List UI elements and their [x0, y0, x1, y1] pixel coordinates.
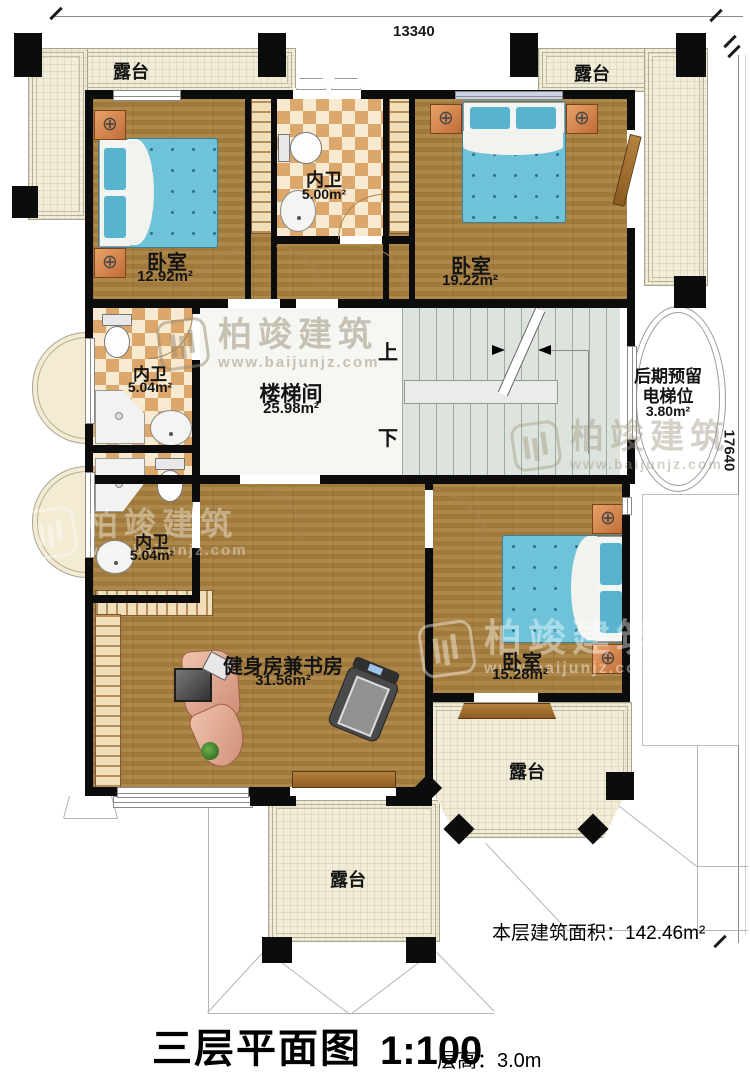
sink [150, 410, 192, 446]
column [676, 33, 706, 77]
terrace-top-right-wing [644, 48, 708, 286]
floor-area-label: 本层建筑面积： [492, 923, 625, 944]
wardrobe [389, 98, 411, 234]
wall-stub [250, 796, 296, 806]
nightstand: ⊕ [592, 644, 624, 674]
column [12, 186, 38, 218]
wall [85, 90, 93, 795]
column [510, 33, 538, 77]
wall [245, 90, 251, 308]
roof-line [63, 796, 70, 818]
room-area-elevator: 3.80m² [646, 403, 690, 419]
roof-line [611, 800, 697, 867]
floor-plan: 13340 17640 上 下 [0, 0, 750, 1079]
wall [85, 595, 197, 603]
dimension-tick [713, 935, 726, 948]
wardrobe [251, 98, 273, 234]
top-dimension-value: 13340 [393, 23, 435, 40]
door-frame [331, 78, 361, 90]
dimension-tick [723, 35, 736, 48]
boundary-line [745, 55, 746, 935]
roof-line [64, 818, 118, 819]
bed [502, 535, 628, 643]
terrace-door-opening [290, 787, 396, 796]
roof-line [436, 952, 494, 1011]
plant [201, 742, 219, 760]
terrace-label: 露台 [509, 758, 545, 784]
door-opening [425, 490, 433, 548]
room-area-bedroom-bottom: 15.28m² [492, 666, 548, 683]
roof-line [697, 866, 748, 867]
wall [85, 475, 635, 484]
door-opening [228, 299, 280, 308]
room-area-bedroom-top-left: 12.92m² [137, 268, 193, 285]
door-leaf [292, 771, 396, 788]
room-area-bedroom-top-right: 19.22m² [442, 272, 498, 289]
wall [622, 483, 630, 702]
right-dimension-value: 17640 [720, 430, 737, 472]
stair-down-label: 下 [378, 422, 398, 451]
bay-window [32, 332, 91, 444]
stair-guide-line [588, 350, 589, 454]
column [14, 33, 42, 77]
bed-sheet [463, 131, 563, 155]
pillow [599, 590, 623, 634]
column [406, 937, 436, 963]
room-area-gym-study: 31.56m² [255, 672, 311, 689]
bed [462, 101, 566, 223]
terrace-label: 露台 [574, 60, 610, 86]
door-opening [240, 475, 320, 484]
nightstand: ⊕ [592, 504, 624, 534]
floor-area-value: 142.46m² [625, 923, 705, 944]
floor-height-value: 3.0m [497, 1050, 541, 1072]
stair-guide-line [551, 350, 589, 351]
future-elevator-opening [627, 346, 637, 440]
roof-line [208, 806, 209, 1014]
room-area-bath-top: 5.00m² [302, 186, 346, 202]
floor-height-label: 层高： [437, 1050, 497, 1072]
column [258, 33, 286, 77]
nightstand: ⊕ [430, 104, 462, 134]
window [622, 497, 632, 515]
stair-landing [404, 380, 558, 404]
pillow [103, 195, 127, 239]
stair-up-label: 上 [378, 336, 398, 365]
drawing-title: 三层平面图 [152, 1016, 362, 1074]
toilet [104, 326, 130, 358]
toilet [278, 134, 290, 162]
door-leaf [458, 703, 556, 719]
column [606, 772, 634, 800]
wardrobe [95, 614, 121, 788]
bay-window-opening [85, 472, 95, 558]
nightstand: ⊕ [94, 248, 126, 278]
roof-line [697, 745, 698, 931]
nightstand: ⊕ [94, 110, 126, 140]
terrace-label: 露台 [330, 866, 366, 892]
bed-sheet [128, 139, 154, 245]
floor-height-note: 层高：3.0m [437, 1044, 541, 1073]
bed [98, 138, 218, 248]
roof-line [207, 951, 264, 1013]
door-opening [296, 299, 338, 308]
wall [85, 299, 635, 308]
room-area-bath-mid-lower: 5.04m² [130, 547, 174, 563]
pillow [599, 542, 623, 586]
top-dimension-line [55, 16, 743, 17]
toilet [155, 458, 185, 470]
wall [409, 90, 415, 308]
bay-window [32, 466, 91, 578]
bed-sheet [571, 536, 597, 640]
column [262, 937, 292, 963]
window [455, 91, 563, 100]
pillow [469, 106, 511, 130]
stair-direction-arrow [538, 345, 551, 355]
door-opening [192, 502, 200, 548]
room-area-stairwell: 25.98m² [263, 400, 319, 417]
pillow [515, 106, 557, 130]
stair-direction-arrow [492, 345, 505, 355]
toilet [290, 132, 322, 164]
dimension-tick [49, 7, 62, 20]
window [117, 787, 249, 798]
nightstand: ⊕ [566, 104, 598, 134]
door-frame [296, 78, 326, 90]
pillow [103, 147, 127, 191]
computer-monitor [174, 668, 212, 702]
bay-window-opening [85, 338, 95, 424]
roof-plane [642, 494, 739, 746]
terrace-label: 露台 [113, 58, 149, 84]
toilet [102, 314, 132, 326]
door-opening [192, 314, 200, 360]
room-area-bath-mid-upper: 5.04m² [128, 379, 172, 395]
wall [85, 445, 197, 453]
column [674, 276, 706, 308]
floor-area-note: 本层建筑面积：142.46m² [492, 918, 705, 945]
sink [96, 540, 134, 574]
terrace-door [113, 90, 181, 101]
terrace-door-opening [474, 693, 538, 702]
